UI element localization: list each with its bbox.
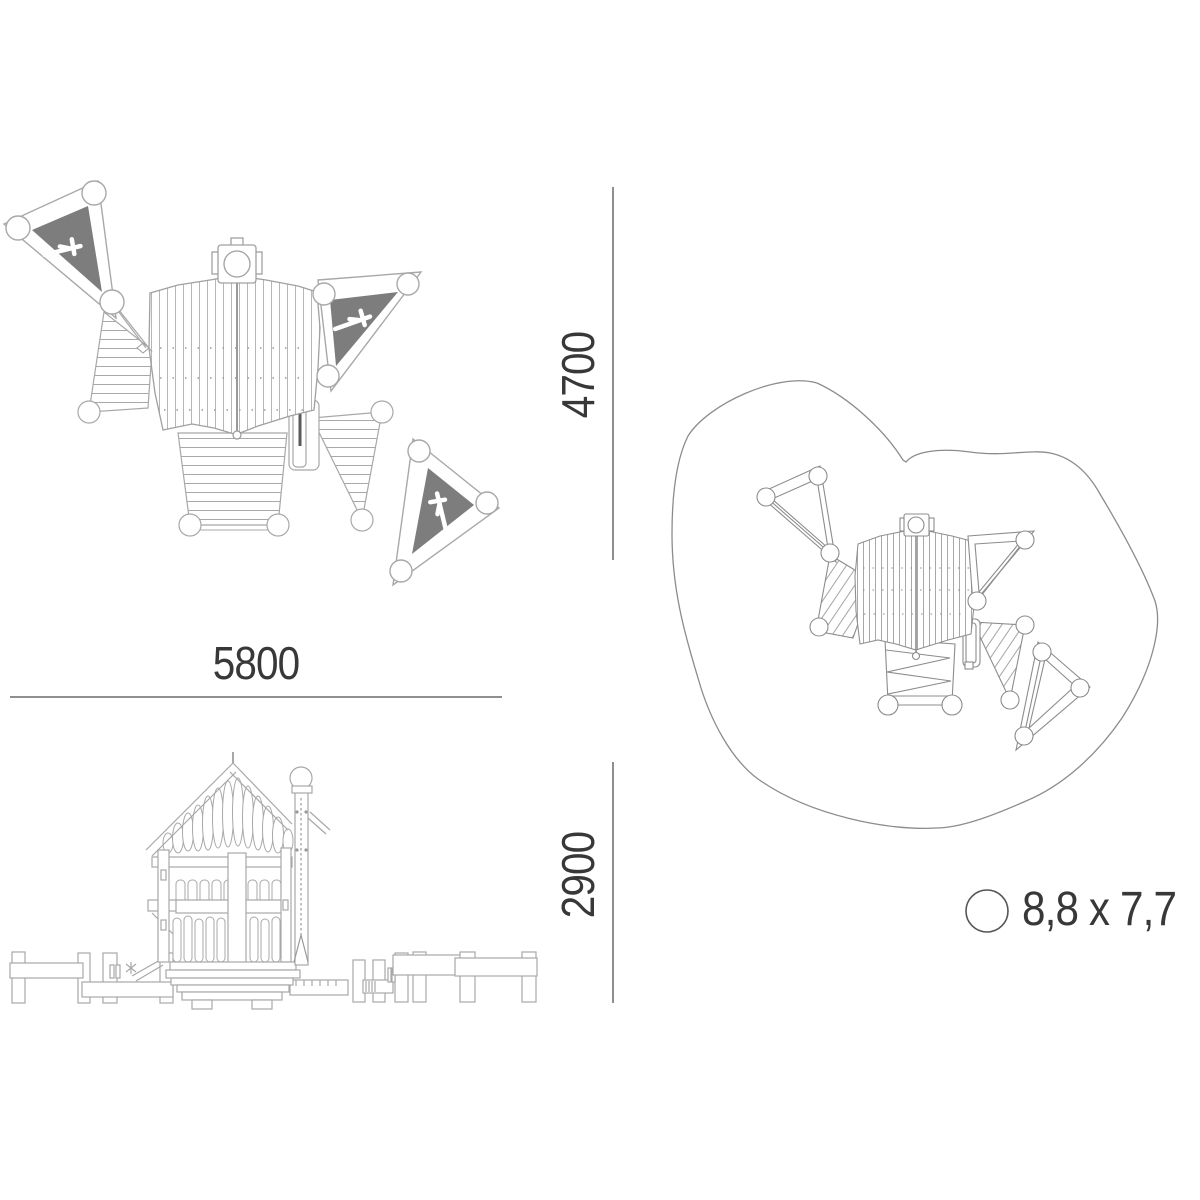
elevation-view xyxy=(0,750,545,1012)
climbing-sail-se xyxy=(390,439,499,585)
dimension-height: 2900 xyxy=(555,743,601,1007)
dimension-line-height xyxy=(612,762,614,1003)
dimension-line-width xyxy=(10,696,502,698)
site-plan-view xyxy=(660,376,1180,881)
roof-planks xyxy=(149,274,320,434)
plan-view xyxy=(0,178,512,648)
ramp-bottom xyxy=(878,639,962,715)
lookout-post xyxy=(212,238,262,283)
ramp-left xyxy=(78,312,152,423)
grass-mark xyxy=(126,962,136,974)
balance-beams-right xyxy=(290,952,537,1002)
ramp-bottom xyxy=(178,433,289,536)
fire-pole xyxy=(290,767,312,965)
technical-drawing-sheet: { "dimensions": { "width": "5800", "dept… xyxy=(0,0,1200,1200)
base-steps xyxy=(166,962,300,1009)
dimension-line-depth xyxy=(612,187,614,560)
ramp-right xyxy=(312,401,393,531)
circle-icon xyxy=(963,887,1011,935)
safety-area-label: 8,8 x 7,7 xyxy=(1022,886,1176,934)
dimension-width: 5800 xyxy=(40,640,473,686)
balance-beams-left xyxy=(10,952,173,1003)
roof-deck xyxy=(137,274,320,439)
climbing-sail-nw xyxy=(4,181,152,352)
climbing-sail-ne xyxy=(313,272,421,391)
dimension-depth: 4700 xyxy=(555,243,601,507)
